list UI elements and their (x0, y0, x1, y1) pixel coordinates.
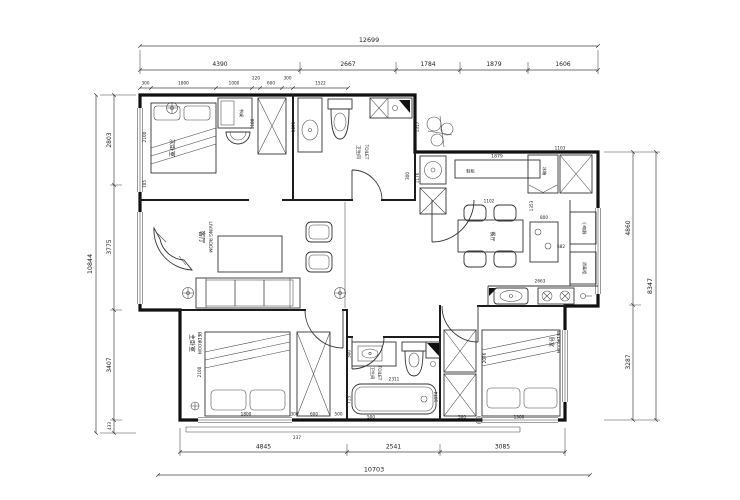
dim-topinner-1: 1800 (178, 81, 189, 86)
dim-tub: 2311 (389, 377, 400, 382)
dining-chair (494, 251, 516, 267)
floor-plan-page: 书桌 次卧室 2100 705 1100 卫生间 TOILET (0, 0, 740, 500)
dim-left-2: 3407 (106, 357, 113, 372)
dim-bath-b: 500 (367, 415, 375, 420)
bed-double (151, 103, 216, 173)
dim-hall: 1353 (529, 200, 534, 211)
appliance-cabinet-2: 消毒柜 (570, 252, 596, 284)
vanity-sink (352, 342, 396, 366)
dining-chair (464, 251, 486, 267)
dim-topinner-2: 1000 (229, 81, 240, 86)
dim-top-total: 12699 (359, 36, 379, 44)
dim-sideboard: 800 (540, 215, 548, 220)
kitchen-sink (494, 288, 528, 304)
sideboard (530, 222, 558, 262)
living-label-cn: 客厅 (198, 231, 207, 244)
vanity-sink (298, 98, 322, 152)
toilet1-label-en: TOILET (364, 144, 369, 160)
dim-bath-c: 1074 (434, 391, 439, 402)
toilet2-label-cn: 卫生间 (369, 367, 376, 380)
dim-bottom-2: 3085 (495, 444, 510, 451)
interior-walls (140, 95, 565, 420)
dim-mward: 600 (310, 412, 318, 417)
pillow (487, 388, 520, 408)
dim-topinner-6: 1522 (315, 81, 326, 86)
dimension-chain-bottom: 4845 2541 3085 10703 237 (158, 428, 590, 475)
ceiling-light-icon (167, 103, 178, 114)
floor-plan-drawing: 书桌 次卧室 2100 705 1100 卫生间 TOILET (0, 0, 740, 500)
living-room: 客厅 LIVING ROOM (154, 221, 346, 308)
door-arc-bedroom3 (442, 306, 478, 342)
living-label-en: LIVING ROOM (207, 221, 213, 252)
counter-edge-bottom (488, 286, 598, 306)
dim-bed2-s: 705 (142, 180, 147, 188)
door-arc-master (305, 310, 343, 348)
dim-rail: 237 (293, 435, 301, 440)
kitchen: 冰箱 小电器 消毒柜 1103 1353 682 (488, 146, 598, 307)
desk-chair (226, 132, 250, 144)
ceiling-light-icon (476, 417, 483, 424)
pillow (211, 390, 246, 410)
fridge-label: 冰箱 (541, 167, 548, 175)
dim-right-1: 3287 (625, 354, 632, 369)
toilet-fixture (328, 99, 352, 139)
dim-top-4: 1606 (555, 61, 570, 68)
side-chair (306, 252, 332, 272)
appliance-cabinet-1: 小电器 (570, 212, 596, 244)
dim-notch-b: 1176 (415, 172, 420, 183)
dining-chair (464, 205, 486, 221)
shoe-cabinet: 鞋柜 (455, 160, 540, 178)
dim-bed2-w: 2100 (142, 131, 147, 142)
dimension-chain-top: 12699 4390 2667 1784 1879 1606 (140, 36, 598, 74)
dim-entry-a: 300 (405, 172, 410, 180)
dim-notch-a: 1317 (415, 121, 420, 132)
dim-shoe: 1879 (491, 154, 503, 160)
room-bedroom2: 书桌 次卧室 2100 705 1100 (142, 98, 286, 188)
plant-icon (427, 116, 453, 147)
dim-top-3: 1879 (486, 61, 501, 68)
dining-label: 餐厅 (489, 231, 496, 241)
dim-bath-a: 713 (347, 396, 352, 404)
faucet-icon (581, 294, 593, 299)
dim-top-2: 1784 (420, 61, 435, 68)
bathtub (352, 384, 436, 414)
dining-chair (494, 205, 516, 221)
dim-counter-b: 2663 (535, 279, 546, 284)
side-chair (306, 222, 332, 242)
pillow (250, 390, 285, 410)
toilet1-label-cn: 卫生间 (355, 145, 362, 159)
master-bedroom: 主卧室 BEDROOM 2100 1800 300 600 500 (188, 310, 343, 417)
fridge: 冰箱 (528, 155, 558, 193)
dim-mbed-w: 1800 (241, 412, 252, 417)
wardrobe-bedroom2 (258, 98, 286, 154)
dim-topinner-0: 300 (142, 81, 150, 86)
dimension-chain-right: 8347 4860 3287 (604, 152, 660, 420)
dim-left-total: 10844 (86, 254, 94, 274)
pillow (184, 106, 210, 120)
dim-top-1: 2667 (340, 61, 355, 68)
dim-bottom-total: 10703 (364, 466, 384, 474)
dim-mside: 500 (335, 412, 343, 417)
storage-cabinet (370, 98, 412, 118)
tall-cabinet (560, 155, 592, 193)
door-arc-toilet1 (352, 170, 382, 200)
dim-bath-d: 300 (347, 350, 352, 358)
shoe-cabinet-label: 鞋柜 (466, 168, 474, 175)
entry-area: 鞋柜 1317 1176 300 1879 (405, 116, 540, 242)
dim-mbed-l: 2100 (197, 366, 202, 377)
bedroom3-label-cn: 卧室 (548, 337, 555, 347)
appliance2-label: 消毒柜 (581, 262, 588, 275)
master-label-cn: 主卧室 (188, 334, 196, 352)
ceiling-light-icon (335, 288, 346, 299)
master-label-en: BEDROOM (197, 332, 202, 354)
sofa (196, 278, 300, 308)
wardrobe-master (297, 332, 330, 416)
dim-fridge-w: 1103 (555, 146, 566, 151)
desk-label: 书桌 (238, 109, 245, 118)
dim-bed3-b: 1300 (514, 415, 525, 420)
armchair-fan (154, 228, 192, 270)
bed-master (205, 332, 290, 416)
gas-stove (538, 288, 574, 304)
corner-cabinet (426, 342, 440, 367)
pillow (524, 388, 557, 408)
dim-ward2: 1100 (250, 118, 255, 129)
dim-right-0: 4860 (625, 220, 632, 235)
dim-bottom-0: 4845 (256, 444, 271, 451)
dimension-chain-top-inner: 300 1800 1000 220 600 300 1522 (140, 76, 348, 89)
dim-right-total: 8347 (646, 278, 654, 294)
balcony-railing (186, 427, 520, 432)
ceiling-light-icon (191, 402, 199, 410)
dim-sink1: 1091 (291, 121, 296, 132)
room-toilet1: 卫生间 TOILET 1091 (291, 98, 412, 200)
dim-topinner-5: 300 (284, 76, 292, 81)
bathroom2: 卫生间 TOILET 2311 713 500 1074 300 (347, 337, 441, 420)
dim-bed3-l: 2076 (482, 352, 487, 363)
dim-left-0: 2803 (106, 132, 113, 147)
counter-corner-mark (489, 288, 497, 296)
washing-machine (420, 156, 446, 184)
bedroom2-label: 次卧室 (168, 139, 176, 157)
coffee-table (218, 236, 282, 272)
dim-bottom-1: 2541 (386, 444, 401, 451)
dimension-chain-left: 10844 2803 3775 3407 433 (86, 95, 136, 433)
dim-mgap: 300 (291, 412, 299, 417)
ceiling-light-icon (183, 288, 194, 299)
entry-cabinet (420, 188, 446, 214)
appliance1-label: 小电器 (581, 222, 588, 235)
dim-left-1: 3775 (106, 239, 113, 254)
dim-table-w: 1102 (484, 199, 495, 204)
dim-bed3-a: 500 (458, 415, 466, 420)
toilet-fixture (402, 342, 426, 376)
dim-topinner-4: 600 (267, 81, 275, 86)
toilet2-label-en: TOILET (377, 365, 382, 381)
dim-left-3: 433 (107, 422, 112, 430)
wardrobe-bedroom3 (444, 330, 476, 416)
dim-top-0: 4390 (212, 61, 227, 68)
dim-topinner-3: 220 (252, 76, 260, 81)
desk: 书桌 (218, 98, 252, 128)
bedroom3: 卧室 BEDROOM 2076 500 1300 (442, 306, 561, 424)
